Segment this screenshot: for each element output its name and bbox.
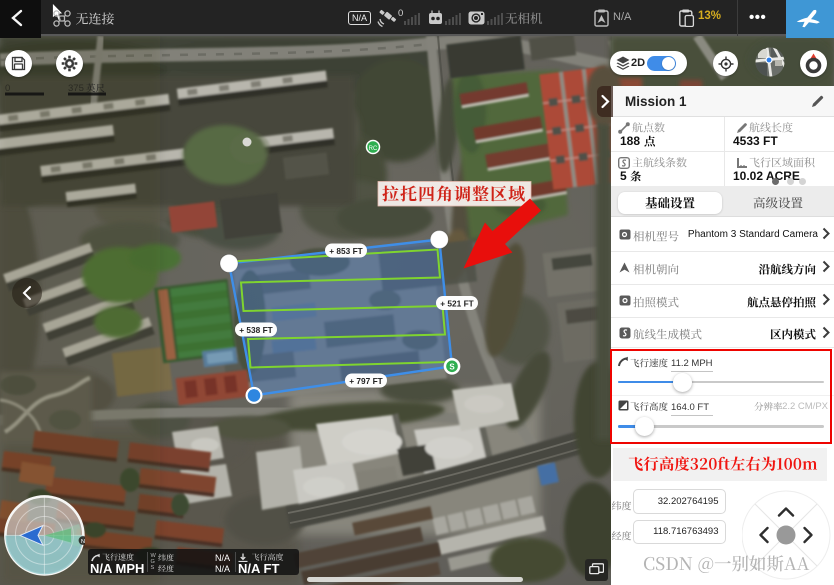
svg-text:+ 538 FT: + 538 FT xyxy=(239,325,272,335)
svg-text:375: 375 xyxy=(68,83,84,94)
svg-text:+ 853 FT: + 853 FT xyxy=(329,246,362,256)
svg-text:+ 797 FT: + 797 FT xyxy=(349,376,382,386)
svg-text:0: 0 xyxy=(5,83,10,94)
svg-text:S: S xyxy=(449,362,455,371)
svg-text:+ 521 FT: + 521 FT xyxy=(440,299,473,309)
svg-text:N: N xyxy=(81,539,85,545)
svg-text:RC: RC xyxy=(369,146,378,152)
